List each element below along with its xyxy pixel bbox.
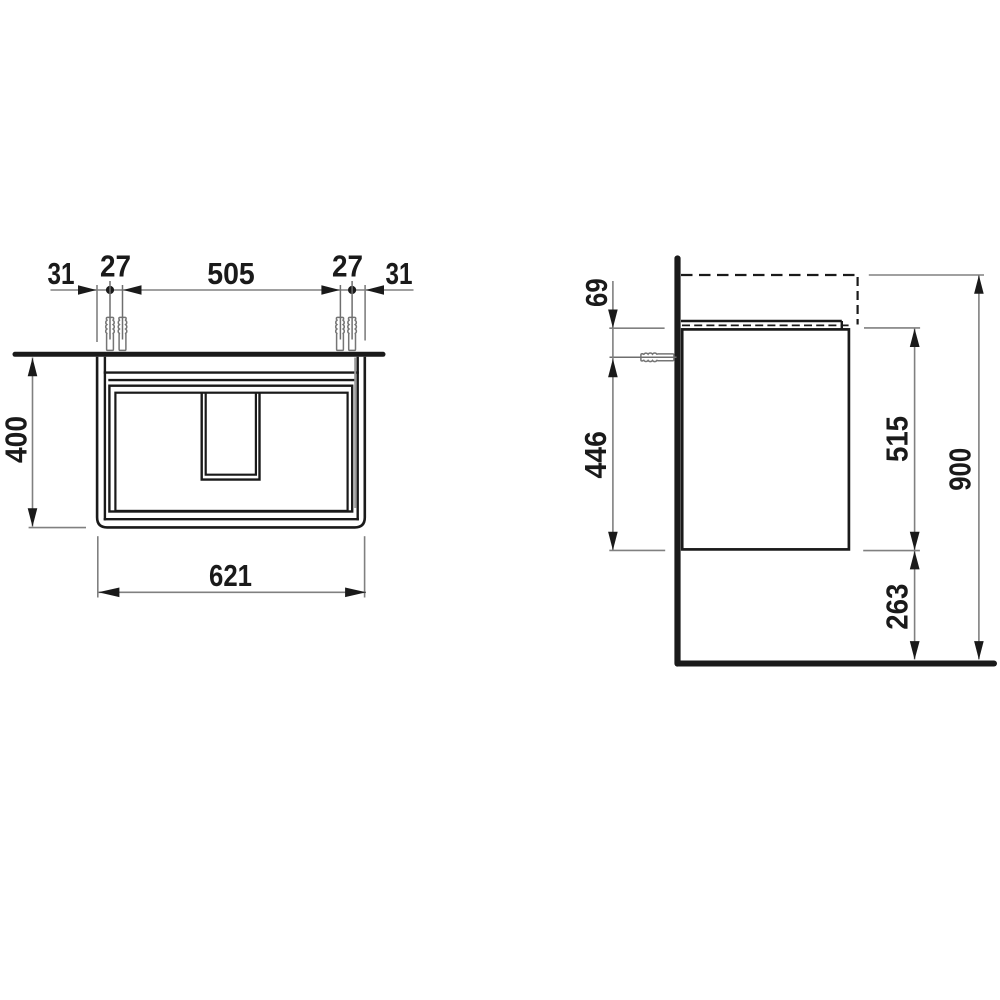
svg-text:515: 515 <box>881 416 915 462</box>
svg-text:31: 31 <box>386 257 413 291</box>
svg-text:27: 27 <box>100 250 131 284</box>
svg-text:69: 69 <box>580 278 614 307</box>
svg-text:27: 27 <box>332 250 363 284</box>
svg-text:446: 446 <box>579 431 613 479</box>
svg-text:400: 400 <box>0 416 33 463</box>
svg-text:505: 505 <box>207 257 255 291</box>
svg-text:621: 621 <box>209 559 252 593</box>
svg-text:31: 31 <box>48 257 75 291</box>
svg-text:900: 900 <box>944 448 978 491</box>
svg-text:263: 263 <box>880 584 914 630</box>
